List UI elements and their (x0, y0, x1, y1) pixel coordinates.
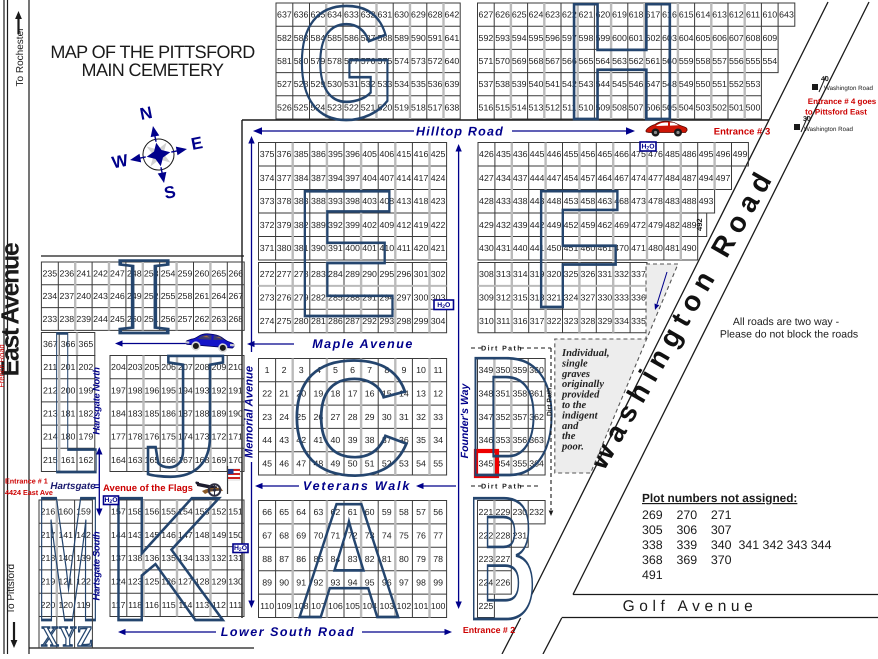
svg-text:606: 606 (712, 33, 727, 43)
svg-text:67: 67 (262, 531, 272, 541)
svg-text:424: 424 (431, 173, 446, 183)
svg-text:538: 538 (495, 79, 510, 89)
svg-text:568: 568 (529, 56, 544, 66)
svg-text:379: 379 (277, 220, 292, 230)
svg-text:378: 378 (277, 196, 292, 206)
svg-text:French Road: French Road (0, 344, 6, 387)
svg-text:Washington Road: Washington Road (824, 85, 874, 92)
svg-text:Hartsgate South: Hartsgate South (92, 531, 103, 600)
svg-text:419: 419 (414, 220, 429, 230)
svg-text:10: 10 (416, 365, 426, 375)
svg-text:H2O: H2O (437, 302, 450, 310)
svg-text:235: 235 (42, 268, 57, 278)
svg-text:595: 595 (529, 33, 544, 43)
svg-text:109: 109 (277, 601, 292, 611)
svg-text:312: 312 (496, 293, 511, 303)
svg-text:371: 371 (260, 243, 275, 253)
svg-text:F: F (531, 155, 623, 343)
svg-text:57: 57 (416, 507, 426, 517)
svg-text:Please do not block the roads: Please do not block the roads (720, 329, 858, 341)
svg-text:MAIN CEMETERY: MAIN CEMETERY (82, 60, 224, 80)
svg-text:504: 504 (679, 102, 694, 112)
svg-text:517: 517 (428, 102, 443, 112)
svg-text:637: 637 (277, 10, 292, 20)
svg-text:541: 541 (545, 79, 560, 89)
svg-text:374: 374 (260, 173, 275, 183)
svg-text:11: 11 (434, 365, 443, 375)
svg-text:Washington Road: Washington Road (804, 126, 854, 133)
svg-text:260: 260 (195, 268, 210, 278)
svg-text:623: 623 (545, 10, 560, 20)
svg-text:242: 242 (93, 268, 108, 278)
svg-text:79: 79 (416, 554, 426, 564)
svg-text:273: 273 (260, 293, 275, 303)
svg-text:274: 274 (260, 316, 275, 326)
svg-text:559: 559 (679, 56, 694, 66)
svg-text:626: 626 (495, 10, 510, 20)
svg-text:486: 486 (682, 149, 697, 159)
svg-text:To Pittsford: To Pittsford (6, 564, 17, 614)
svg-text:Memorial Avenue: Memorial Avenue (244, 366, 256, 458)
svg-text:78: 78 (433, 554, 443, 564)
svg-text:21: 21 (279, 388, 289, 398)
svg-text:639: 639 (445, 79, 460, 89)
svg-text:190: 190 (228, 409, 243, 419)
svg-text:569: 569 (512, 56, 527, 66)
svg-text:422: 422 (431, 220, 446, 230)
svg-text:indigent: indigent (562, 410, 599, 421)
svg-text:40: 40 (821, 76, 829, 83)
svg-text:500: 500 (746, 102, 761, 112)
svg-text:197: 197 (111, 385, 126, 395)
svg-text:425: 425 (431, 149, 446, 159)
svg-text:434: 434 (496, 173, 511, 183)
svg-text:13: 13 (416, 388, 426, 398)
svg-text:480: 480 (648, 243, 663, 253)
svg-text:534: 534 (394, 79, 409, 89)
svg-text:204: 204 (111, 362, 126, 372)
svg-text:Golf Avenue: Golf Avenue (623, 598, 758, 615)
svg-text:641: 641 (445, 33, 460, 43)
svg-text:556: 556 (729, 56, 744, 66)
svg-text:2: 2 (282, 365, 287, 375)
svg-text:graves: graves (561, 369, 590, 380)
svg-text:24: 24 (279, 412, 289, 422)
svg-text:Hartsgate: Hartsgate (50, 481, 96, 492)
svg-text:516: 516 (479, 102, 494, 112)
svg-text:593: 593 (495, 33, 510, 43)
svg-text:Hilltop Road: Hilltop Road (416, 125, 504, 139)
svg-text:570: 570 (495, 56, 510, 66)
svg-text:100: 100 (431, 601, 446, 611)
svg-text:572: 572 (428, 56, 443, 66)
svg-text:473: 473 (631, 196, 646, 206)
svg-text:551: 551 (712, 79, 727, 89)
svg-text:373: 373 (260, 196, 275, 206)
svg-text:304: 304 (431, 316, 446, 326)
svg-text:46: 46 (279, 458, 289, 468)
svg-text:45: 45 (262, 458, 272, 468)
svg-text:12: 12 (433, 388, 443, 398)
svg-text:Founder's Way: Founder's Way (459, 383, 471, 459)
svg-text:300: 300 (414, 293, 429, 303)
svg-text:491: 491 (642, 568, 663, 582)
svg-text:H2O: H2O (642, 144, 655, 152)
svg-text:499: 499 (733, 149, 748, 159)
svg-text:268: 268 (228, 314, 243, 324)
svg-text:22: 22 (262, 388, 272, 398)
svg-text:514: 514 (512, 102, 527, 112)
svg-text:574: 574 (394, 56, 409, 66)
svg-text:269 270 271: 269 270 271 (642, 508, 732, 522)
svg-text:513: 513 (529, 102, 544, 112)
svg-text:627: 627 (479, 10, 494, 20)
svg-text:Veterans Walk: Veterans Walk (303, 479, 411, 493)
svg-text:439: 439 (513, 220, 528, 230)
svg-text:309: 309 (479, 293, 494, 303)
svg-text:527: 527 (277, 79, 292, 89)
svg-text:32: 32 (416, 412, 426, 422)
svg-text:643: 643 (779, 10, 794, 20)
svg-text:492: 492 (695, 218, 704, 231)
svg-text:428: 428 (479, 196, 494, 206)
svg-text:536: 536 (428, 79, 443, 89)
svg-text:275: 275 (277, 316, 292, 326)
svg-text:440: 440 (513, 243, 528, 253)
svg-text:628: 628 (428, 10, 443, 20)
svg-text:55: 55 (433, 458, 443, 468)
svg-text:494: 494 (699, 173, 714, 183)
svg-text:414: 414 (397, 173, 412, 183)
svg-text:611: 611 (746, 10, 760, 20)
svg-text:single: single (561, 358, 588, 369)
svg-text:314: 314 (513, 269, 528, 279)
svg-text:302: 302 (431, 269, 446, 279)
svg-text:557: 557 (712, 56, 727, 66)
svg-text:336: 336 (631, 293, 646, 303)
svg-text:487: 487 (682, 173, 697, 183)
svg-text:296: 296 (397, 269, 412, 279)
svg-text:554: 554 (762, 56, 777, 66)
svg-text:305 306 307: 305 306 307 (642, 523, 732, 537)
svg-text:488: 488 (682, 196, 697, 206)
svg-text:430: 430 (479, 243, 494, 253)
svg-text:44: 44 (262, 435, 272, 445)
svg-text:515: 515 (495, 102, 510, 112)
svg-text:77: 77 (433, 531, 443, 541)
svg-text:630: 630 (394, 10, 409, 20)
svg-text:267: 267 (228, 291, 243, 301)
svg-text:418: 418 (414, 196, 429, 206)
svg-text:594: 594 (512, 33, 527, 43)
svg-text:Entrance # 3: Entrance # 3 (714, 127, 771, 138)
svg-text:413: 413 (397, 196, 412, 206)
svg-text:553: 553 (746, 79, 761, 89)
svg-text:Hartsgate North: Hartsgate North (92, 367, 103, 435)
svg-text:87: 87 (279, 554, 289, 564)
svg-text:501: 501 (729, 102, 744, 112)
svg-text:503: 503 (696, 102, 711, 112)
svg-text:540: 540 (529, 79, 544, 89)
svg-text:435: 435 (496, 149, 511, 159)
svg-text:43: 43 (279, 435, 289, 445)
svg-text:170: 170 (228, 455, 243, 465)
svg-text:429: 429 (479, 220, 494, 230)
svg-text:to the: to the (562, 400, 587, 411)
svg-text:99: 99 (433, 577, 443, 587)
svg-text:590: 590 (411, 33, 426, 43)
svg-text:90: 90 (279, 577, 289, 587)
svg-text:615: 615 (679, 10, 694, 20)
svg-text:313: 313 (496, 269, 511, 279)
svg-text:301: 301 (414, 269, 429, 279)
svg-text:484: 484 (665, 173, 680, 183)
svg-text:110: 110 (260, 601, 274, 611)
svg-text:589: 589 (394, 33, 409, 43)
svg-text:423: 423 (431, 196, 446, 206)
svg-text:605: 605 (696, 33, 711, 43)
svg-text:472: 472 (631, 220, 646, 230)
svg-text:629: 629 (411, 10, 426, 20)
svg-text:438: 438 (513, 196, 528, 206)
svg-text:E: E (294, 153, 398, 355)
svg-text:Dirt Path: Dirt Path (481, 483, 523, 491)
svg-text:Lower South Road: Lower South Road (221, 625, 355, 639)
svg-text:151: 151 (228, 507, 243, 517)
svg-text:581: 581 (277, 56, 292, 66)
svg-text:377: 377 (277, 173, 292, 183)
svg-text:482: 482 (665, 220, 680, 230)
svg-text:375: 375 (260, 149, 275, 159)
svg-text:376: 376 (277, 149, 292, 159)
svg-text:XYZ: XYZ (41, 621, 93, 653)
svg-text:131: 131 (228, 553, 243, 563)
svg-text:originally: originally (562, 379, 604, 390)
svg-text:437: 437 (513, 173, 528, 183)
svg-text:591: 591 (428, 33, 443, 43)
svg-text:276: 276 (277, 293, 292, 303)
svg-text:571: 571 (479, 56, 494, 66)
svg-text:4424 East Ave: 4424 East Ave (5, 488, 53, 497)
svg-text:150: 150 (228, 530, 243, 540)
svg-text:592: 592 (479, 33, 494, 43)
svg-text:537: 537 (479, 79, 494, 89)
svg-text:502: 502 (712, 102, 727, 112)
svg-text:614: 614 (696, 10, 711, 20)
svg-text:549: 549 (679, 79, 694, 89)
svg-text:259: 259 (178, 268, 193, 278)
svg-text:368 369 370: 368 369 370 (642, 553, 732, 567)
svg-text:493: 493 (699, 196, 714, 206)
svg-text:558: 558 (696, 56, 711, 66)
svg-text:=: = (94, 482, 100, 493)
svg-text:258: 258 (178, 291, 193, 301)
svg-text:and: and (562, 421, 579, 432)
svg-text:337: 337 (631, 269, 646, 279)
svg-text:130: 130 (228, 577, 243, 587)
svg-text:335: 335 (631, 316, 646, 326)
svg-text:573: 573 (411, 56, 426, 66)
svg-text:490: 490 (682, 243, 697, 253)
svg-text:266: 266 (228, 268, 243, 278)
svg-text:poor.: poor. (561, 442, 584, 453)
svg-text:56: 56 (433, 507, 443, 517)
svg-text:417: 417 (414, 173, 429, 183)
svg-text:415: 415 (397, 149, 412, 159)
svg-text:477: 477 (648, 173, 663, 183)
svg-text:555: 555 (746, 56, 761, 66)
svg-text:471: 471 (631, 243, 646, 253)
svg-text:88: 88 (262, 554, 272, 564)
svg-text:264: 264 (211, 291, 226, 301)
svg-text:432: 432 (496, 220, 511, 230)
svg-text:261: 261 (195, 291, 210, 301)
svg-text:416: 416 (414, 149, 429, 159)
svg-text:610: 610 (762, 10, 777, 20)
svg-text:210: 210 (228, 362, 243, 372)
svg-text:426: 426 (479, 149, 494, 159)
svg-text:Plot numbers not assigned:: Plot numbers not assigned: (642, 491, 797, 505)
svg-text:497: 497 (716, 173, 731, 183)
svg-text:604: 604 (679, 33, 694, 43)
svg-text:495: 495 (699, 149, 714, 159)
svg-text:Avenue of the Flags: Avenue of the Flags (103, 483, 193, 494)
svg-text:481: 481 (665, 243, 680, 253)
svg-text:241: 241 (76, 268, 91, 278)
svg-text:33: 33 (433, 412, 443, 422)
svg-text:191: 191 (228, 385, 243, 395)
svg-text:338 339 340 341 342 343: 338 339 340 341 342 343 344 (642, 538, 832, 552)
svg-text:315: 315 (513, 293, 528, 303)
svg-text:65: 65 (279, 507, 289, 517)
svg-text:MAP OF THE PITTSFORD: MAP OF THE PITTSFORD (50, 42, 255, 62)
svg-text:98: 98 (416, 577, 426, 587)
svg-text:Individual,: Individual, (561, 348, 610, 359)
svg-text:177: 177 (111, 432, 126, 442)
svg-text:474: 474 (631, 173, 646, 183)
svg-text:101: 101 (414, 601, 429, 611)
svg-text:277: 277 (277, 269, 292, 279)
svg-text:535: 535 (411, 79, 426, 89)
svg-text:184: 184 (111, 409, 126, 419)
svg-text:519: 519 (394, 102, 409, 112)
svg-text:607: 607 (729, 33, 744, 43)
svg-text:518: 518 (411, 102, 426, 112)
svg-text:608: 608 (746, 33, 761, 43)
svg-text:550: 550 (696, 79, 711, 89)
svg-text:431: 431 (496, 243, 511, 253)
svg-text:642: 642 (445, 10, 460, 20)
svg-text:420: 420 (414, 243, 429, 253)
svg-text:512: 512 (545, 102, 560, 112)
svg-text:76: 76 (416, 531, 426, 541)
svg-text:638: 638 (445, 102, 460, 112)
svg-text:478: 478 (648, 196, 663, 206)
svg-text:612: 612 (729, 10, 744, 20)
svg-text:427: 427 (479, 173, 494, 183)
svg-text:380: 380 (277, 243, 292, 253)
svg-text:433: 433 (496, 196, 511, 206)
svg-text:412: 412 (397, 220, 412, 230)
svg-text:496: 496 (716, 149, 731, 159)
svg-text:171: 171 (228, 432, 243, 442)
svg-text:1: 1 (265, 365, 270, 375)
svg-text:To Rochester: To Rochester (15, 27, 26, 87)
svg-text:68: 68 (279, 531, 289, 541)
svg-text:613: 613 (712, 10, 727, 20)
svg-text:34: 34 (433, 435, 443, 445)
svg-text:421: 421 (431, 243, 446, 253)
svg-text:567: 567 (545, 56, 560, 66)
svg-text:Entrance # 2: Entrance # 2 (463, 625, 515, 635)
svg-text:596: 596 (545, 33, 560, 43)
svg-text:111: 111 (229, 600, 242, 610)
svg-text:35: 35 (416, 435, 426, 445)
svg-text:89: 89 (262, 577, 272, 587)
svg-text:479: 479 (648, 220, 663, 230)
svg-text:299: 299 (414, 316, 429, 326)
svg-text:640: 640 (445, 56, 460, 66)
svg-text:provided: provided (561, 390, 600, 401)
svg-text:Entrance # 4 goes: Entrance # 4 goes (808, 97, 877, 106)
svg-text:539: 539 (512, 79, 527, 89)
svg-text:54: 54 (416, 458, 426, 468)
svg-text:436: 436 (513, 149, 528, 159)
svg-text:Dirt Path: Dirt Path (547, 388, 554, 416)
svg-text:372: 372 (260, 220, 275, 230)
svg-text:609: 609 (762, 33, 777, 43)
svg-text:Entrance # 1: Entrance # 1 (5, 477, 48, 486)
svg-text:Dirt Path: Dirt Path (481, 345, 523, 353)
svg-text:66: 66 (262, 507, 272, 517)
svg-text:272: 272 (260, 269, 275, 279)
svg-text:All roads are two way -: All roads are two way - (733, 316, 840, 328)
svg-text:483: 483 (665, 196, 680, 206)
svg-text:625: 625 (512, 10, 527, 20)
svg-text:552: 552 (729, 79, 744, 89)
svg-text:23: 23 (262, 412, 272, 422)
svg-text:Maple Avenue: Maple Avenue (312, 337, 414, 351)
svg-text:411: 411 (397, 243, 411, 253)
svg-text:H2O: H2O (234, 545, 247, 553)
svg-text:298: 298 (397, 316, 412, 326)
svg-text:265: 265 (211, 268, 226, 278)
svg-text:308: 308 (479, 269, 494, 279)
svg-text:236: 236 (59, 268, 74, 278)
svg-text:624: 624 (529, 10, 544, 20)
svg-text:526: 526 (277, 102, 292, 112)
svg-text:H2O: H2O (105, 497, 118, 505)
svg-text:582: 582 (277, 33, 292, 43)
svg-text:297: 297 (397, 293, 412, 303)
svg-text:the: the (562, 431, 576, 442)
svg-text:30: 30 (803, 116, 811, 123)
svg-text:to Pittsford East: to Pittsford East (805, 108, 867, 117)
